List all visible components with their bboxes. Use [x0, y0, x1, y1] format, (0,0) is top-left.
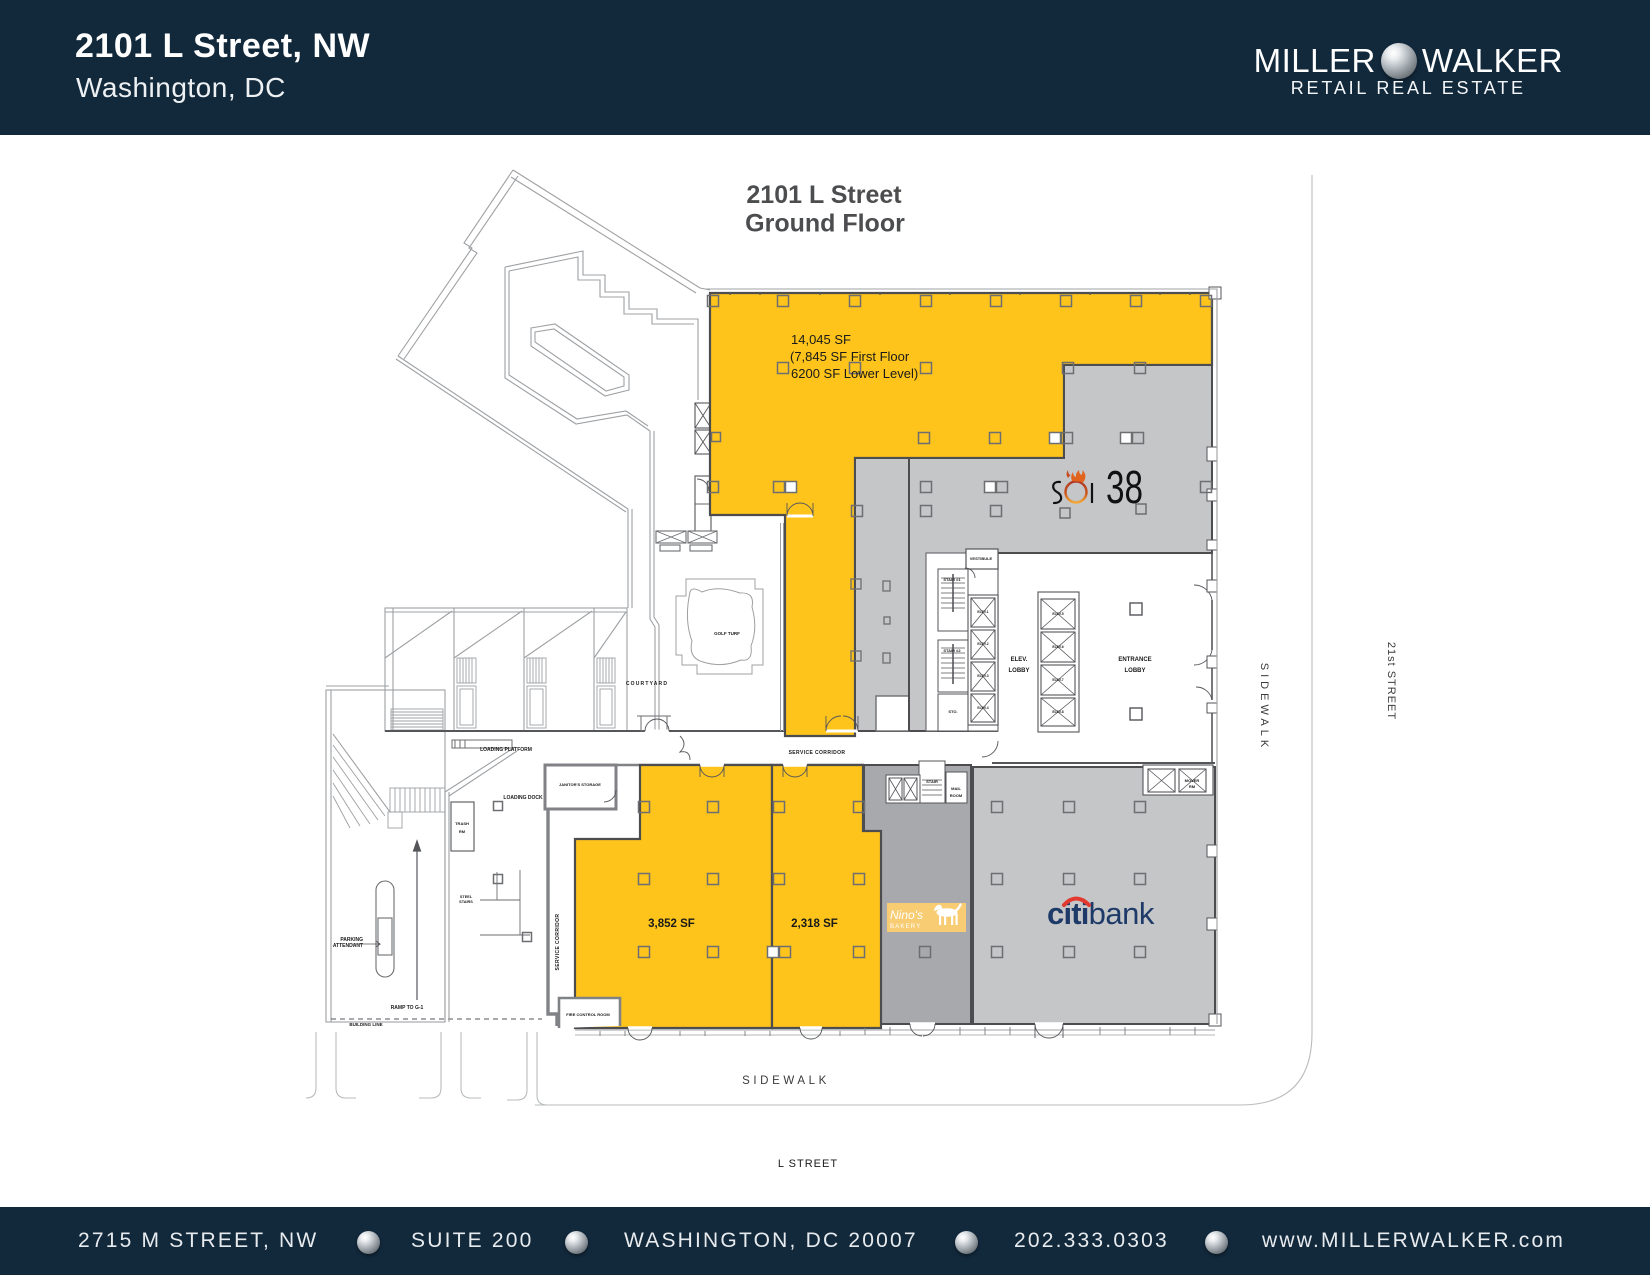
- svg-text:SIDEWALK: SIDEWALK: [1258, 663, 1270, 751]
- svg-text:SIDEWALK: SIDEWALK: [742, 1075, 830, 1087]
- svg-text:LOADING DOCK: LOADING DOCK: [503, 795, 543, 801]
- svg-text:LOBBY: LOBBY: [1009, 668, 1030, 674]
- svg-text:STAIR: STAIR: [926, 779, 938, 784]
- svg-text:BUILDING LINE: BUILDING LINE: [349, 1022, 382, 1027]
- svg-text:MAIL: MAIL: [951, 786, 961, 791]
- svg-text:COURTYARD: COURTYARD: [626, 681, 668, 687]
- svg-text:VESTIBULE: VESTIBULE: [970, 556, 993, 561]
- svg-text:ROOM: ROOM: [950, 793, 963, 798]
- svg-text:STO.: STO.: [948, 709, 957, 714]
- svg-text:Ground Floor: Ground Floor: [745, 210, 905, 238]
- svg-text:6200 SF Lower Level): 6200 SF Lower Level): [791, 366, 918, 381]
- svg-text:FIRE CONTROL ROOM: FIRE CONTROL ROOM: [566, 1012, 610, 1017]
- svg-text:ELEV.6: ELEV.6: [1052, 645, 1063, 649]
- svg-text:LOBBY: LOBBY: [1125, 668, 1146, 674]
- svg-text:2,318 SF: 2,318 SF: [791, 918, 838, 930]
- svg-text:Nino's: Nino's: [890, 908, 923, 922]
- svg-text:RAMP TO G-1: RAMP TO G-1: [391, 1005, 424, 1011]
- svg-text:ENTRANCE: ENTRANCE: [1118, 657, 1151, 663]
- svg-text:14,045 SF: 14,045 SF: [791, 332, 851, 347]
- svg-text:LOADING PLATFORM: LOADING PLATFORM: [480, 747, 532, 753]
- svg-text:ELEV.8: ELEV.8: [1052, 710, 1063, 714]
- svg-text:L STREET: L STREET: [778, 1158, 838, 1170]
- svg-text:ELEV.1: ELEV.1: [977, 610, 988, 614]
- svg-text:ELEV.4: ELEV.4: [977, 706, 988, 710]
- svg-text:ELEV.2: ELEV.2: [977, 642, 988, 646]
- svg-text:ELEV.5: ELEV.5: [1052, 612, 1063, 616]
- svg-text:RM: RM: [459, 829, 466, 834]
- svg-text:STAIR #2: STAIR #2: [943, 648, 961, 653]
- svg-text:2101 L Street: 2101 L Street: [746, 181, 902, 209]
- svg-text:STAIRS: STAIRS: [459, 900, 473, 904]
- svg-text:(7,845 SF First Floor: (7,845 SF First Floor: [790, 349, 910, 364]
- svg-text:SERVICE CORRIDOR: SERVICE CORRIDOR: [789, 750, 846, 756]
- svg-text:GOLF TURF: GOLF TURF: [714, 631, 740, 636]
- svg-text:RM: RM: [1189, 784, 1196, 789]
- svg-text:38: 38: [1106, 461, 1143, 513]
- svg-text:citibank: citibank: [1047, 896, 1155, 931]
- svg-text:SERVICE CORRIDOR: SERVICE CORRIDOR: [555, 914, 561, 971]
- svg-text:21st STREET: 21st STREET: [1385, 642, 1397, 720]
- svg-text:ELEV.7: ELEV.7: [1052, 678, 1063, 682]
- svg-text:TRASH: TRASH: [455, 821, 469, 826]
- svg-text:MOVER: MOVER: [1185, 778, 1200, 783]
- svg-text:STEEL: STEEL: [460, 895, 473, 899]
- svg-text:STAIR #1: STAIR #1: [943, 577, 961, 582]
- svg-text:ELEV.3: ELEV.3: [977, 674, 988, 678]
- svg-text:ELEV.: ELEV.: [1011, 657, 1028, 663]
- svg-text:BAKERY: BAKERY: [890, 924, 921, 930]
- svg-text:JANITOR'S STORAGE: JANITOR'S STORAGE: [559, 782, 601, 787]
- svg-text:3,852 SF: 3,852 SF: [648, 918, 695, 930]
